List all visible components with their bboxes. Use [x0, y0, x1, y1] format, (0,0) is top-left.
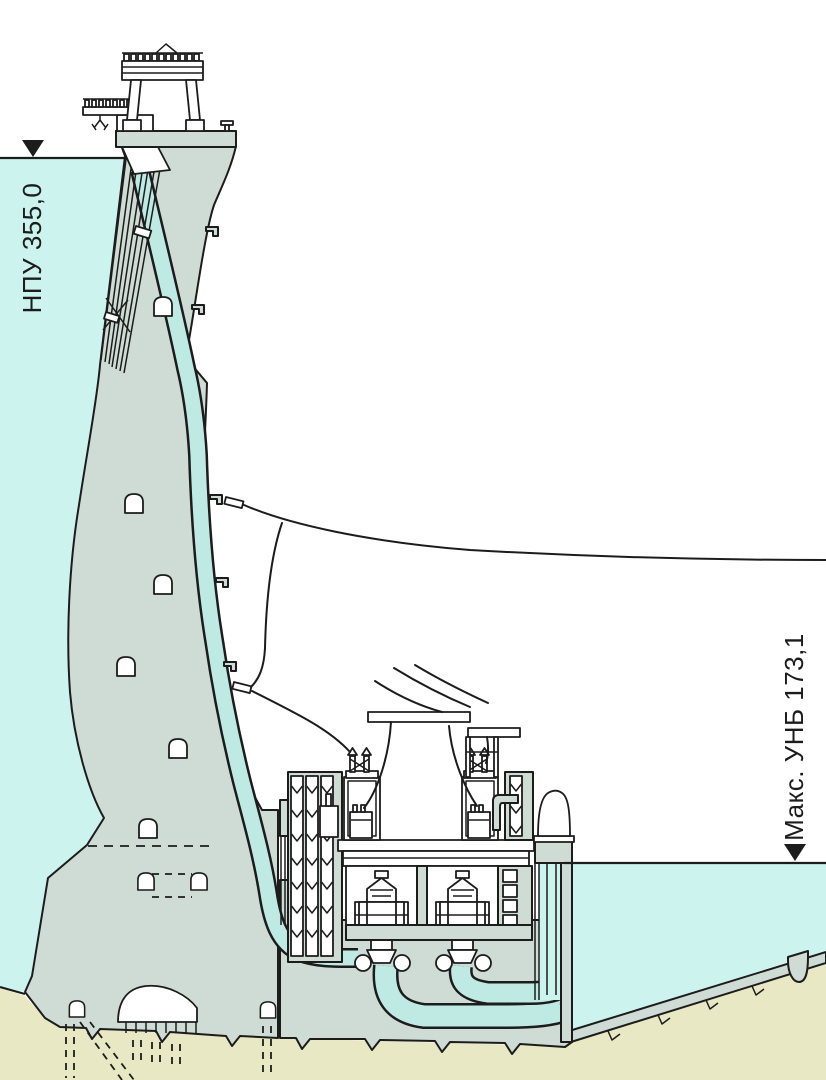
- crest-deck: [116, 131, 236, 147]
- auxiliary-cabinet: [320, 806, 338, 837]
- downstream-level-label: Макс. УНБ 173,1: [779, 633, 809, 841]
- hall-roof: [338, 840, 534, 851]
- crane-girder: [122, 61, 203, 80]
- unit-pier: [417, 866, 427, 925]
- gate-pedestal: [535, 840, 572, 863]
- upstream-level-label: НПУ 355,0: [17, 183, 47, 314]
- hall-floor: [346, 925, 532, 940]
- gantry-beam: [468, 728, 520, 737]
- dam-cross-section-drawing: НПУ 355,0 Макс. УНБ 173,1: [0, 0, 826, 1080]
- dam-diagram-page: НПУ 355,0 Макс. УНБ 173,1: [0, 0, 826, 1080]
- apron-anchor-lobe: [788, 951, 808, 982]
- crane-foot: [186, 120, 204, 131]
- busbar-beam: [368, 712, 470, 722]
- crane-foot: [123, 120, 141, 131]
- chevron-wall-left: [280, 772, 342, 962]
